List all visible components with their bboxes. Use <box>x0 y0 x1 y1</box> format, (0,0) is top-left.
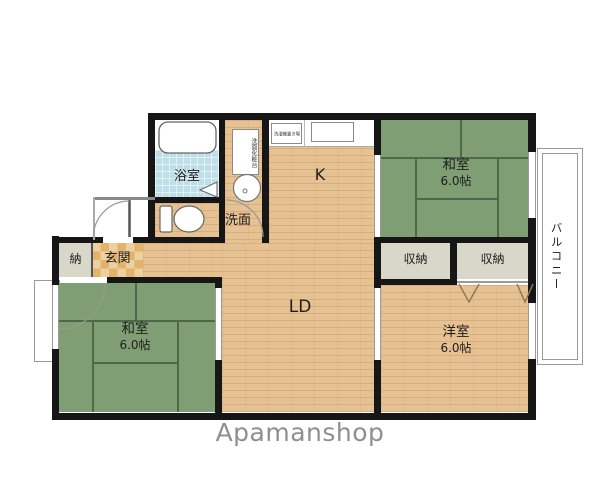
japanese-room-sw-label: 和室 6.0帖 <box>100 322 170 352</box>
closet-b-label: 収納 <box>457 252 528 266</box>
japanese-room-ne-label: 和室 6.0帖 <box>421 158 491 188</box>
balcony-label: バルコニー <box>549 209 563 304</box>
western-room-label: 洋室 6.0帖 <box>420 325 492 355</box>
folding-door-mark <box>517 284 533 302</box>
room-size: 6.0帖 <box>421 174 491 188</box>
room-size: 6.0帖 <box>420 341 492 355</box>
room-name: 和室 <box>421 158 491 174</box>
room-name: 洋室 <box>420 325 492 341</box>
entrance-label: 玄関 <box>92 251 143 266</box>
bathtub <box>159 122 216 153</box>
washitsu-sw-door-swing <box>59 283 105 329</box>
washroom-label: 洗面 <box>213 213 263 228</box>
floor-plan: 洗濯機置き場 洗面化粧台 浴室 洗面 <box>0 0 600 480</box>
washbasin <box>234 175 261 202</box>
toilet-tank <box>160 206 172 232</box>
fixtures-overlay <box>0 0 600 480</box>
storage-label: 納 <box>59 252 92 266</box>
closet-a-label: 収納 <box>381 252 450 266</box>
room-name: 和室 <box>100 322 170 338</box>
toilet-bowl <box>174 206 204 232</box>
brand-logo: Apamanshop <box>150 418 450 447</box>
kitchen-label: K <box>300 166 340 185</box>
room-size: 6.0帖 <box>100 338 170 352</box>
living-dining-label: LD <box>280 297 320 317</box>
bathroom-label: 浴室 <box>162 169 212 184</box>
folding-door-mark <box>459 284 479 302</box>
front-door-swing <box>94 201 130 237</box>
